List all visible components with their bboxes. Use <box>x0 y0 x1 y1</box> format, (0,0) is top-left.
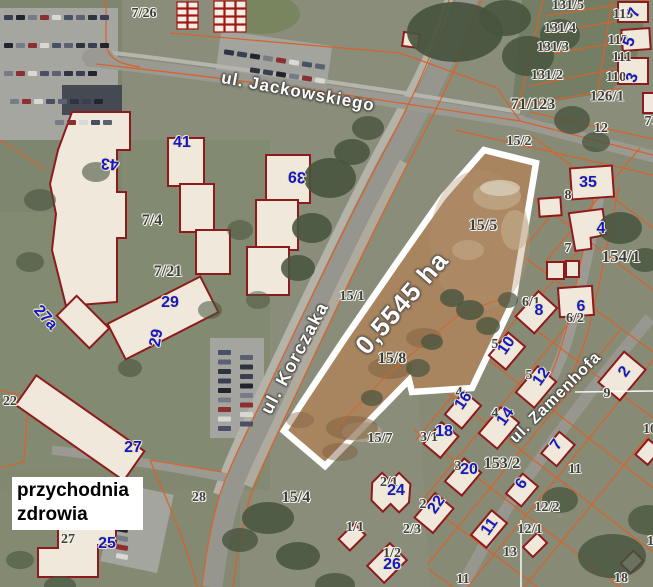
annotation-line-2: zdrowia <box>17 503 139 527</box>
annotation-line-1: przychodnia <box>17 479 139 503</box>
annotation-box: przychodnia zdrowia <box>12 477 143 530</box>
map-image: 0,5545 ha 7/26131/5131/4131/3131/271/123… <box>0 0 653 587</box>
